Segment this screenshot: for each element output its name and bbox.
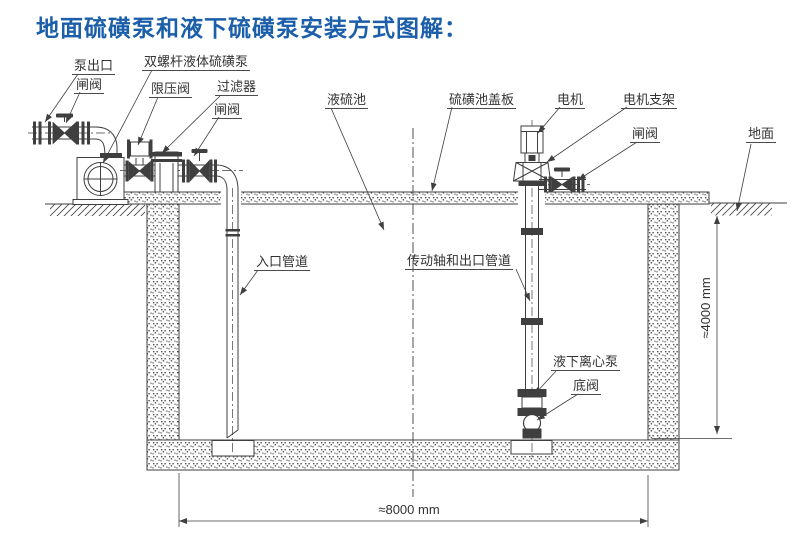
valve-handwheel (192, 149, 208, 153)
gate-valve-2 (182, 149, 217, 183)
label-pool-cover-plate: 硫磺池盖板 (447, 93, 516, 109)
leader-pressure-relief-valve (138, 97, 158, 145)
filter-vessel (151, 152, 182, 192)
pit-left-wall (147, 204, 179, 440)
label-liquid-sulfur-pool: 液硫池 (325, 93, 368, 109)
surface-pump-unit (28, 114, 243, 205)
leader-gate-valve-1 (66, 92, 80, 123)
ground-left-surface (45, 204, 148, 216)
leader-ground (737, 144, 751, 211)
leader-pool-cover-plate (432, 107, 452, 191)
label-twin-screw-pump: 双螺杆液体硫磺泵 (142, 55, 250, 71)
label-submerged-pump: 液下离心泵 (551, 355, 620, 371)
label-pump-outlet: 泵出口 (72, 59, 115, 75)
motor (521, 126, 543, 153)
run-valve (126, 161, 154, 182)
right-sump-recess (511, 441, 552, 455)
valve-handwheel (554, 168, 570, 172)
label-gate-valve-3: 闸阀 (630, 127, 660, 143)
diagram-page: 地面硫磺泵和液下硫磺泵安装方式图解： (0, 0, 800, 548)
label-inlet-pipe: 入口管道 (254, 255, 310, 271)
label-drive-shaft: 传动轴和出口管道 (405, 254, 513, 270)
dimension-pit-width: ≈8000 mm (369, 502, 449, 517)
leader-liquid-sulfur-pool (331, 108, 384, 230)
pump-base (73, 200, 128, 205)
leader-gate-valve-3 (578, 142, 637, 180)
ground-right-surface (709, 203, 787, 216)
label-motor: 电机 (555, 93, 585, 109)
leader-foot-valve (537, 394, 578, 420)
pool-cover-plate (120, 192, 709, 204)
dimension-pit-depth: ≈4000 mm (698, 268, 714, 348)
pressure-relief-valve (127, 140, 153, 166)
pit-right-wall (648, 204, 679, 440)
twin-screw-pump-body (73, 158, 128, 205)
leader-motor (538, 107, 560, 133)
label-gate-valve-1: 闸阀 (74, 78, 104, 94)
inlet-pipe-assembly (217, 165, 240, 452)
label-gate-valve-2: 闸阀 (212, 103, 242, 119)
coupling-box (525, 153, 539, 163)
width-dimension (179, 473, 648, 527)
shaft-bearing-collar (521, 228, 543, 235)
label-pressure-relief-valve: 限压阀 (149, 82, 192, 98)
foot-valve (523, 415, 542, 439)
label-filter: 过滤器 (215, 80, 258, 96)
label-ground: 地面 (746, 127, 776, 143)
label-foot-valve: 底阀 (571, 379, 601, 395)
submerged-centrifugal-pump (518, 389, 547, 416)
leader-drive-shaft (516, 269, 530, 301)
leader-motor-bracket (547, 107, 627, 162)
leader-inlet-pipe (240, 270, 258, 295)
sulfur-pit-structure (120, 191, 709, 470)
left-sump-recess (212, 441, 254, 457)
shaft-bearing-collar (521, 318, 543, 325)
label-motor-bracket: 电机支架 (621, 93, 677, 109)
installation-diagram (0, 0, 800, 548)
